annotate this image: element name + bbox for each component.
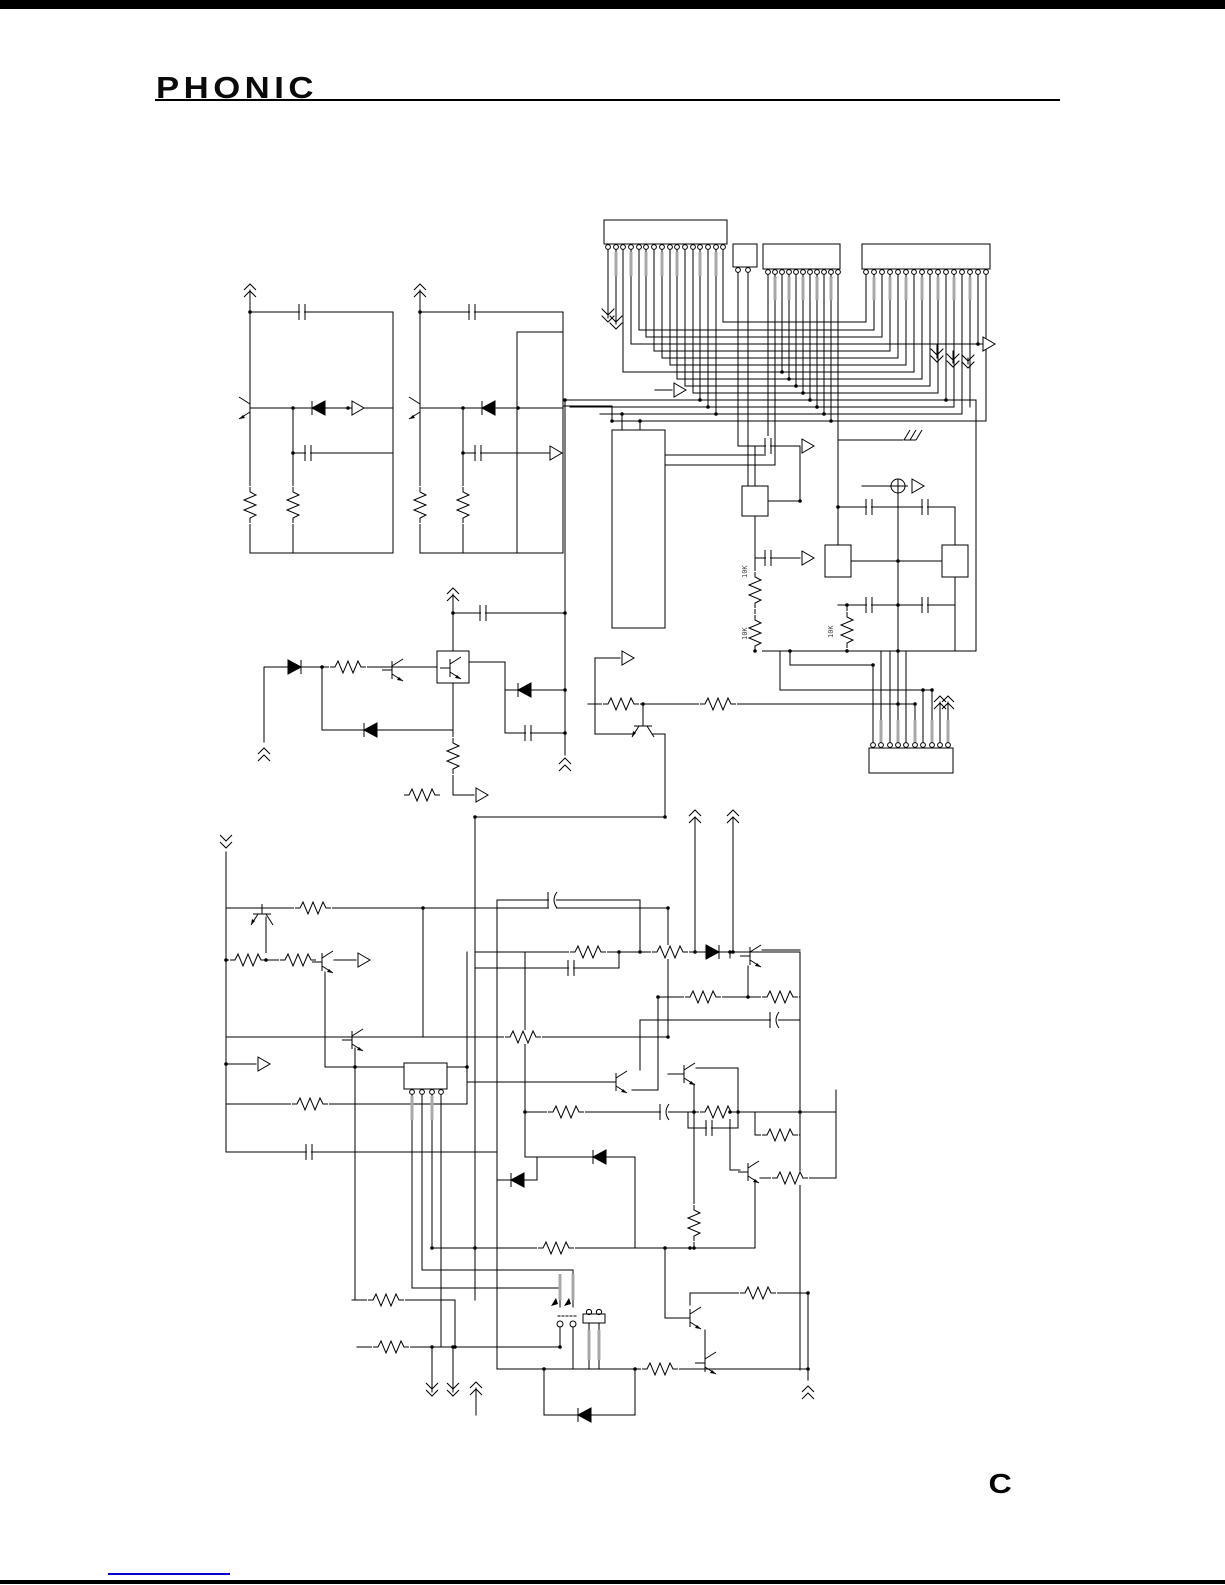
resistor-icon	[761, 990, 799, 1004]
resistor-icon	[641, 1362, 679, 1376]
diode-icon	[364, 723, 377, 737]
resistor-icon	[547, 1105, 585, 1119]
connector-top-mid	[763, 244, 840, 269]
resistor-icon	[748, 571, 762, 609]
capacitor-icon	[548, 890, 557, 910]
transistor-icon	[674, 1063, 695, 1085]
driver-stage	[475, 651, 739, 1300]
resistor-icon	[367, 1293, 405, 1307]
signal-arrow-icon	[622, 651, 634, 665]
diode-icon	[593, 1150, 606, 1164]
resistor-icon	[446, 737, 460, 775]
resistor-icon	[291, 1097, 329, 1111]
connector-pins	[871, 743, 951, 748]
signal-arrow-icon	[802, 551, 814, 565]
signal-arrow-icon	[674, 383, 686, 397]
transistor-icon	[632, 716, 654, 737]
resistor-icon	[229, 953, 267, 967]
resistor-icon	[748, 614, 762, 652]
capacitor-icon	[660, 1102, 669, 1122]
power-arrow-icon	[802, 1386, 814, 1399]
resistor-icon	[739, 1286, 777, 1300]
connector-top-right	[862, 244, 990, 269]
diode-icon	[706, 945, 719, 959]
resistor-value-label: 10K	[741, 627, 749, 640]
connector-bottom	[869, 748, 953, 773]
resistor-icon	[771, 1171, 809, 1185]
signal-arrow-icon	[983, 337, 995, 351]
resistor-value-label: 10K	[741, 565, 749, 578]
fuse-component	[583, 1309, 605, 1323]
resistor-icon	[569, 945, 607, 959]
ground-arrow-icon	[220, 835, 232, 848]
input-stage-left	[239, 284, 393, 553]
transistor-icon	[342, 1029, 363, 1051]
transistor-icon	[251, 904, 273, 925]
resistor-value-label: 10K	[827, 625, 835, 638]
connector-top-small	[733, 244, 757, 267]
chassis-ground-icon	[904, 430, 922, 440]
signal-arrow-icon	[802, 439, 814, 453]
signal-arrow-icon	[358, 953, 370, 967]
connector-pins	[410, 1090, 444, 1095]
footer-link[interactable]	[108, 1573, 230, 1575]
junction-dots	[224, 342, 980, 1371]
resistor-icon	[684, 990, 722, 1004]
relay-switch	[551, 1298, 576, 1327]
connector-top-left	[604, 220, 727, 244]
signal-arrow-icon	[258, 1057, 270, 1071]
resistor-icon	[602, 697, 640, 711]
resistor-icon	[294, 901, 332, 915]
wire-harness	[565, 249, 995, 651]
transistor-icon	[382, 659, 403, 681]
resistor-icon	[504, 1030, 542, 1044]
manual-page: PHONIC	[0, 0, 1225, 1585]
power-arrow-icon	[559, 758, 571, 771]
signal-arrow-icon	[550, 446, 562, 460]
ground-arrow-icon	[962, 355, 974, 368]
transistor-icon	[680, 1307, 701, 1329]
resistor-icon	[699, 697, 737, 711]
copyright-mark: C	[988, 1468, 1011, 1500]
diode-icon	[288, 660, 301, 674]
transistor-icon	[695, 1352, 716, 1374]
resistor-icon	[329, 660, 367, 674]
resistor-icon	[279, 953, 317, 967]
bottom-rule	[0, 1580, 1225, 1584]
transistor-icon	[606, 1071, 627, 1093]
output-node-icon	[888, 479, 908, 493]
diode-icon	[511, 1173, 524, 1187]
diode-icon	[578, 1408, 591, 1422]
signal-arrow-icon	[912, 479, 924, 493]
resistor-icon	[537, 1241, 575, 1255]
input-stage-right	[409, 284, 612, 553]
resistor-icon	[761, 1128, 799, 1142]
circuit-schematic: 10K 10K 10K	[0, 0, 1225, 1585]
resistor-icon	[840, 611, 854, 649]
resistor-icon	[687, 1204, 701, 1242]
resistor-icon	[651, 945, 689, 959]
diode-icon	[518, 683, 531, 697]
resistor-icon	[372, 1340, 410, 1354]
transistor-icon	[740, 945, 761, 967]
regulator-package	[404, 1063, 447, 1089]
signal-arrow-icon	[352, 401, 364, 415]
signal-arrow-icon	[476, 788, 488, 802]
filter-block: 10K 10K 10K	[738, 430, 976, 745]
transistor-icon	[738, 1161, 759, 1183]
resistor-icon	[403, 788, 441, 802]
power-arrow-icon	[258, 748, 270, 761]
capacitor-icon	[770, 1010, 779, 1030]
